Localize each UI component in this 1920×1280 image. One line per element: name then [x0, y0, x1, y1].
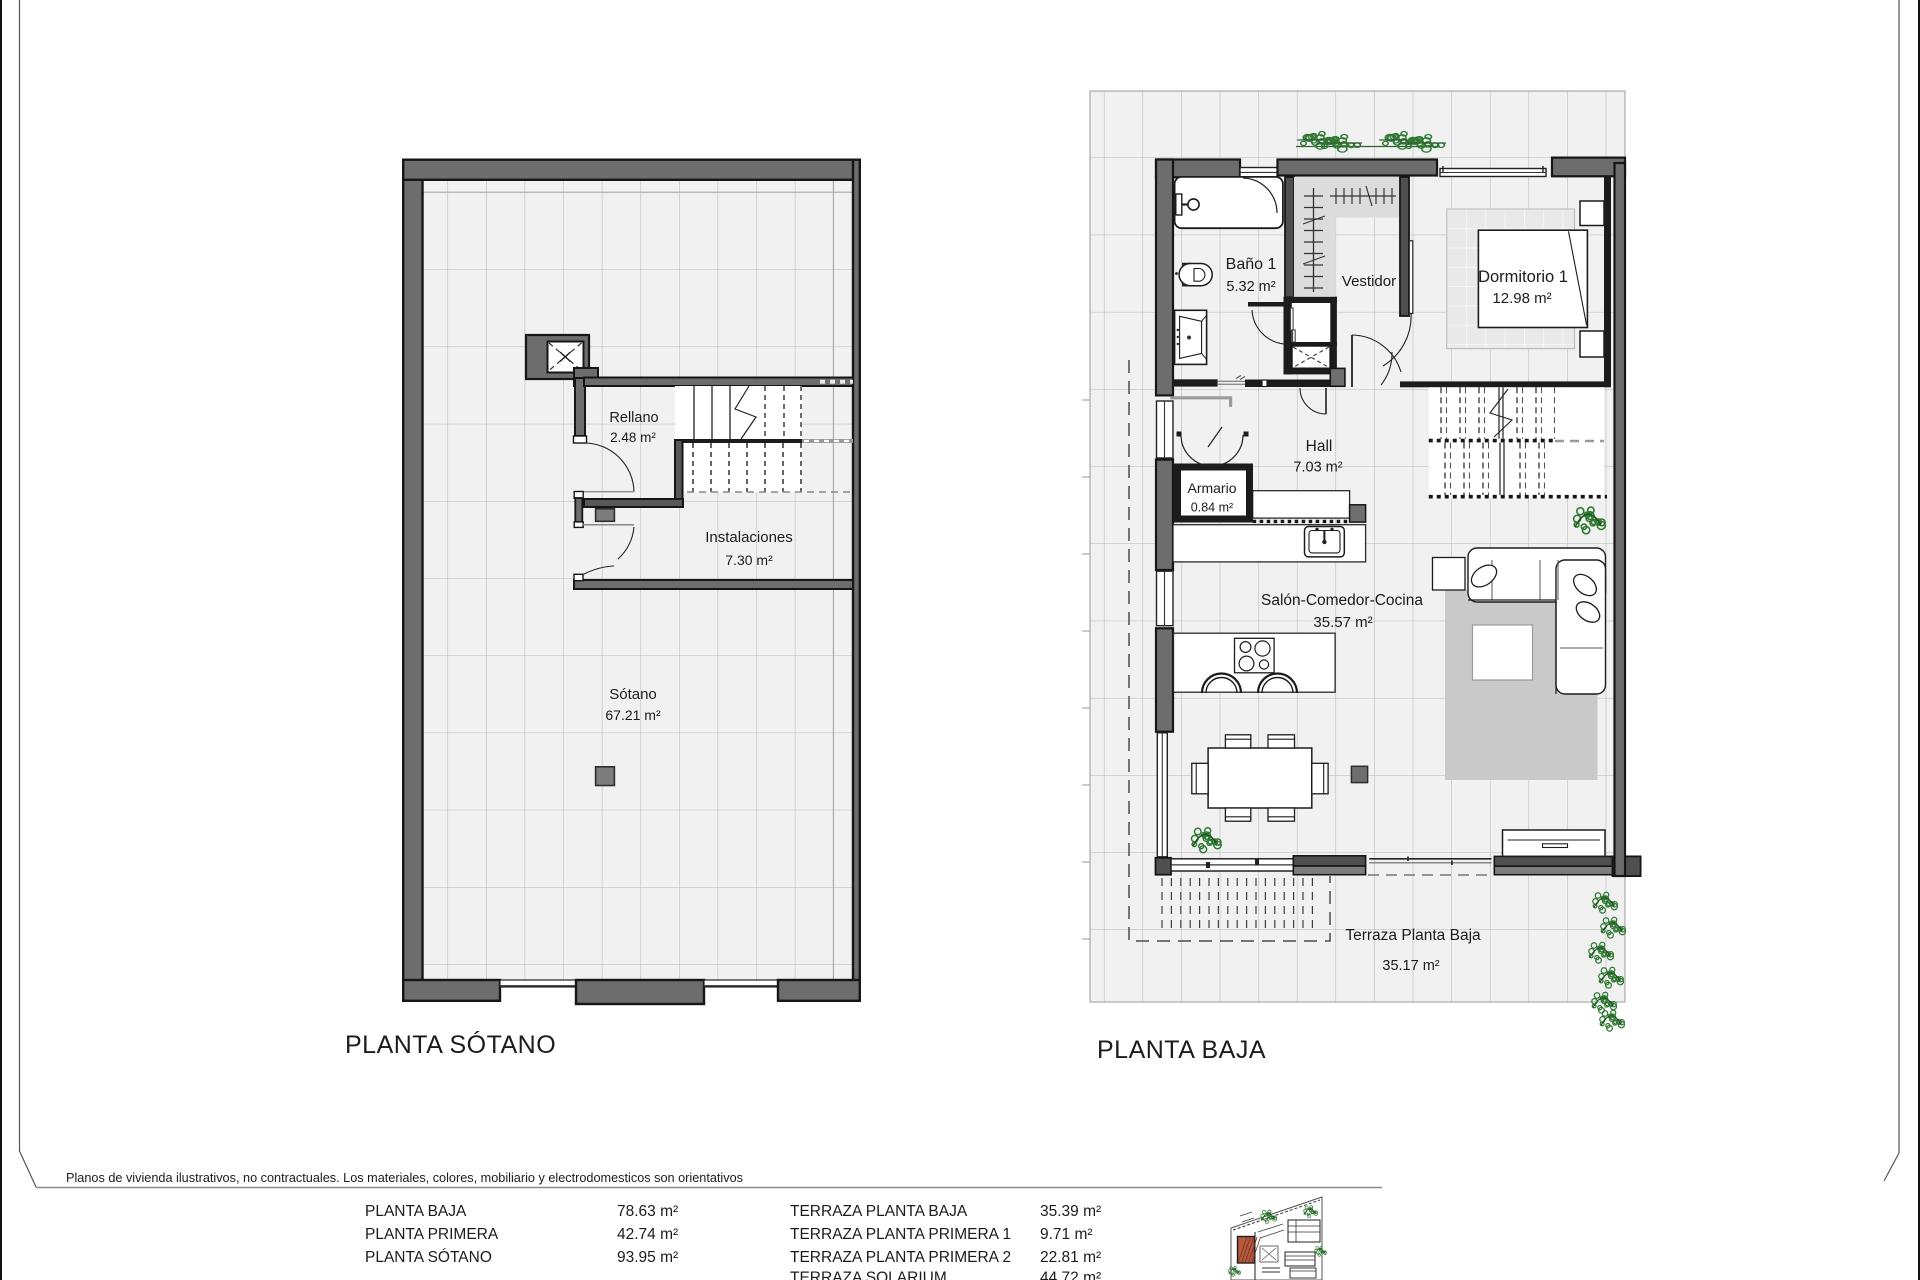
- svg-text:35.39 m²: 35.39 m²: [1040, 1203, 1101, 1220]
- svg-text:42.74 m²: 42.74 m²: [617, 1226, 678, 1243]
- svg-text:Dormitorio 1: Dormitorio 1: [1478, 268, 1568, 286]
- svg-text:7.30 m²: 7.30 m²: [725, 552, 773, 568]
- svg-text:7.03 m²: 7.03 m²: [1293, 460, 1342, 476]
- svg-text:TERRAZA SOLARIUM: TERRAZA SOLARIUM: [790, 1270, 947, 1280]
- svg-text:35.17 m²: 35.17 m²: [1382, 958, 1439, 974]
- svg-text:PLANTA SÓTANO: PLANTA SÓTANO: [345, 1030, 556, 1059]
- svg-text:Armario: Armario: [1187, 480, 1236, 496]
- svg-text:Sótano: Sótano: [609, 686, 657, 703]
- svg-text:Rellano: Rellano: [609, 410, 658, 426]
- svg-text:93.95 m²: 93.95 m²: [617, 1249, 678, 1266]
- svg-text:Salón-Comedor-Cocina: Salón-Comedor-Cocina: [1261, 592, 1423, 609]
- svg-text:PLANTA BAJA: PLANTA BAJA: [1097, 1036, 1266, 1064]
- svg-text:Planos de vivienda ilustrativo: Planos de vivienda ilustrativos, no cont…: [66, 1171, 743, 1185]
- svg-text:Vestidor: Vestidor: [1342, 273, 1396, 290]
- svg-text:0.84 m²: 0.84 m²: [1191, 501, 1233, 515]
- svg-text:78.63 m²: 78.63 m²: [617, 1203, 678, 1220]
- svg-text:Baño 1: Baño 1: [1226, 256, 1277, 273]
- svg-text:TERRAZA PLANTA PRIMERA 1: TERRAZA PLANTA PRIMERA 1: [790, 1226, 1011, 1243]
- svg-text:Hall: Hall: [1306, 438, 1333, 455]
- svg-text:TERRAZA PLANTA BAJA: TERRAZA PLANTA BAJA: [790, 1203, 968, 1220]
- svg-text:PLANTA SÓTANO: PLANTA SÓTANO: [365, 1249, 492, 1266]
- svg-text:PLANTA BAJA: PLANTA BAJA: [365, 1203, 467, 1220]
- svg-text:2.48 m²: 2.48 m²: [610, 430, 656, 445]
- svg-text:35.57 m²: 35.57 m²: [1313, 614, 1372, 631]
- svg-text:44.72 m²: 44.72 m²: [1040, 1270, 1101, 1280]
- svg-text:22.81 m²: 22.81 m²: [1040, 1249, 1101, 1266]
- svg-text:9.71 m²: 9.71 m²: [1040, 1226, 1093, 1243]
- svg-text:12.98 m²: 12.98 m²: [1492, 290, 1551, 307]
- svg-text:Instalaciones: Instalaciones: [705, 529, 793, 546]
- svg-text:Terraza Planta Baja: Terraza Planta Baja: [1345, 927, 1481, 944]
- svg-text:5.32 m²: 5.32 m²: [1226, 279, 1275, 295]
- svg-text:67.21 m²: 67.21 m²: [605, 707, 661, 723]
- svg-text:TERRAZA PLANTA PRIMERA 2: TERRAZA PLANTA PRIMERA 2: [790, 1249, 1011, 1266]
- svg-text:PLANTA PRIMERA: PLANTA PRIMERA: [365, 1226, 499, 1243]
